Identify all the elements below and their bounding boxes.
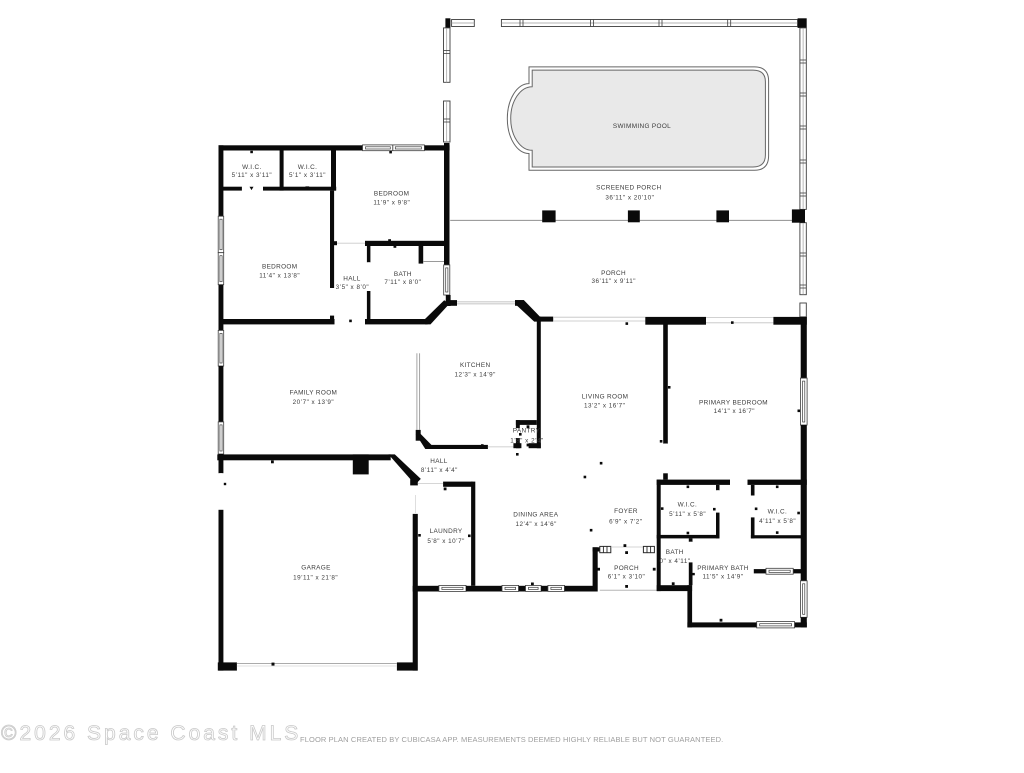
svg-text:6’1" x 3’10": 6’1" x 3’10" [608,573,645,580]
svg-text:0" x 4’11": 0" x 4’11" [660,558,691,565]
svg-text:12’4" x 14’6": 12’4" x 14’6" [515,521,556,528]
svg-text:12’3" x 14’9": 12’3" x 14’9" [454,371,495,378]
svg-text:FLOOR PLAN CREATED BY CUBICASA: FLOOR PLAN CREATED BY CUBICASA APP. MEAS… [300,735,723,744]
svg-text:11’9" x 9’8": 11’9" x 9’8" [373,199,410,206]
svg-text:4’11" x 5’8": 4’11" x 5’8" [759,518,796,525]
svg-text:BATH: BATH [666,549,684,556]
svg-text:36’11" x 9’11": 36’11" x 9’11" [592,278,637,285]
svg-text:1’8" x 2’4": 1’8" x 2’4" [510,438,543,445]
svg-text:13’2" x 16’7": 13’2" x 16’7" [584,403,625,410]
svg-text:W.I.C.: W.I.C. [298,164,318,171]
svg-text:GARAGE: GARAGE [301,564,330,571]
svg-text:SCREENED PORCH: SCREENED PORCH [596,185,661,192]
svg-text:BEDROOM: BEDROOM [374,190,409,197]
svg-text:©2026 Space Coast MLS: ©2026 Space Coast MLS [1,722,301,745]
svg-text:W.I.C.: W.I.C. [242,164,262,171]
svg-text:PRIMARY BATH: PRIMARY BATH [697,565,748,572]
svg-text:11’5" x 14’9": 11’5" x 14’9" [703,574,744,581]
svg-text:7’11" x 8’0": 7’11" x 8’0" [384,279,421,286]
svg-text:6’9" x 7’2": 6’9" x 7’2" [609,519,642,526]
svg-text:PANTRY: PANTRY [513,427,541,434]
svg-text:5’11" x 3’11": 5’11" x 3’11" [232,172,273,179]
svg-text:BATH: BATH [394,271,412,278]
svg-text:W.I.C.: W.I.C. [678,501,698,508]
svg-text:3’5" x 8’0": 3’5" x 8’0" [336,284,369,291]
svg-text:KITCHEN: KITCHEN [460,362,491,369]
svg-text:FAMILY ROOM: FAMILY ROOM [290,389,338,396]
svg-text:LAUNDRY: LAUNDRY [430,528,463,535]
svg-text:14’1" x 16’7": 14’1" x 16’7" [714,408,755,415]
svg-text:HALL: HALL [430,458,447,465]
svg-text:LIVING ROOM: LIVING ROOM [582,393,628,400]
svg-text:BEDROOM: BEDROOM [262,264,297,271]
svg-text:W.I.C.: W.I.C. [768,508,788,515]
svg-text:5’1" x 3’11": 5’1" x 3’11" [289,172,326,179]
svg-text:HALL: HALL [343,275,360,282]
svg-text:PORCH: PORCH [614,565,639,572]
svg-text:19’11" x 21’8": 19’11" x 21’8" [293,575,338,582]
svg-text:PORCH: PORCH [601,270,626,277]
svg-text:SWIMMING POOL: SWIMMING POOL [613,123,671,130]
svg-text:36’11" x 20’10": 36’11" x 20’10" [605,194,654,201]
svg-text:FOYER: FOYER [614,508,638,515]
svg-text:PRIMARY BEDROOM: PRIMARY BEDROOM [699,400,768,407]
svg-text:11’4" x 13’8": 11’4" x 13’8" [259,273,300,280]
svg-text:5’11" x 5’8": 5’11" x 5’8" [669,511,706,518]
svg-text:20’7" x 13’9": 20’7" x 13’9" [293,399,334,406]
svg-text:5’8" x 10’7": 5’8" x 10’7" [427,538,464,545]
svg-text:DINING AREA: DINING AREA [513,512,558,519]
svg-text:8’11" x 4’4": 8’11" x 4’4" [421,467,458,474]
